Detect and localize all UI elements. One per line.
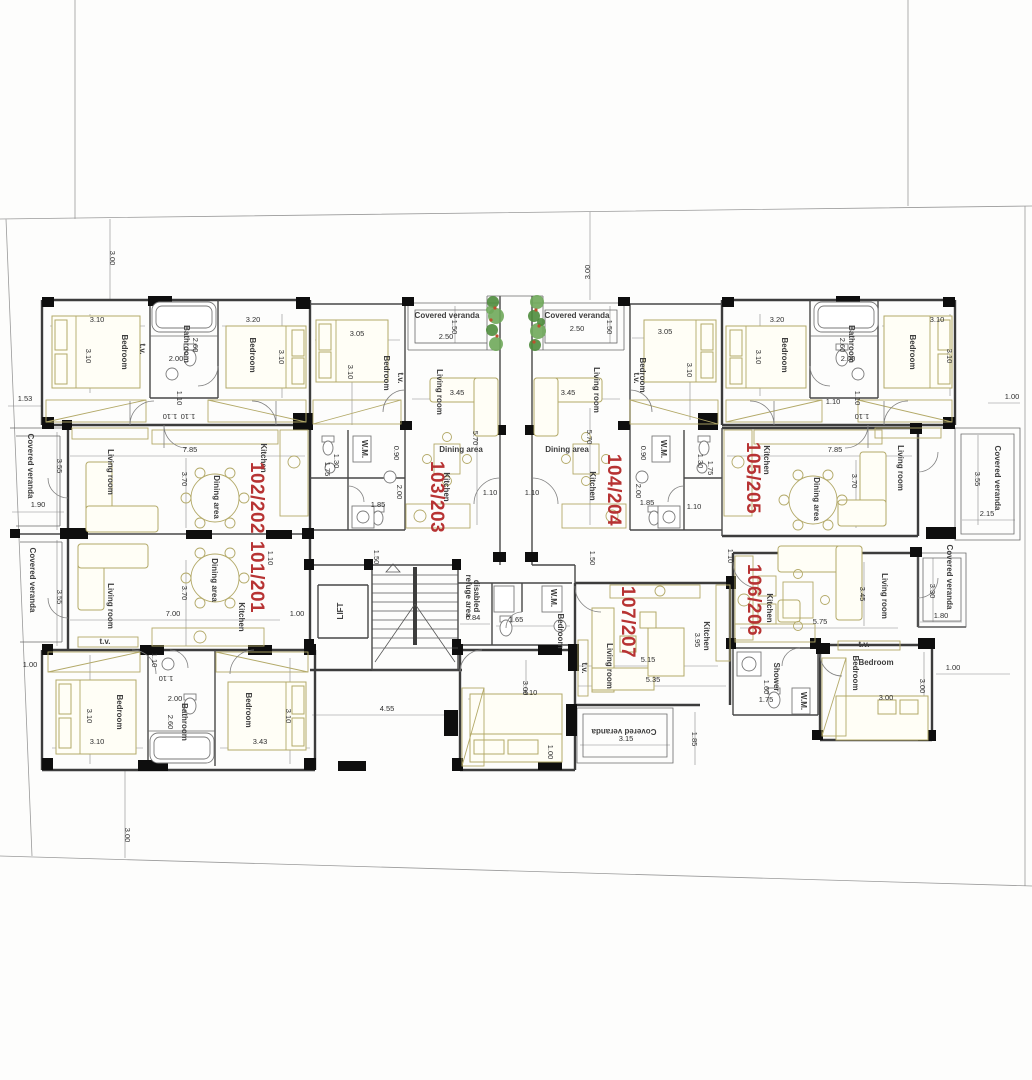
dimension-label: 2.15 <box>980 509 995 518</box>
toilet <box>322 436 334 455</box>
dimension-label: 2.60 <box>191 338 200 353</box>
dimension-label: 3.30 <box>928 584 937 599</box>
room-label: Covered veranda <box>945 545 954 610</box>
sink <box>852 368 864 380</box>
dimension-label: 1.50 <box>588 551 597 566</box>
dimension-label: 0.84 <box>466 613 481 622</box>
dimension-label: 3.10 <box>84 349 93 364</box>
dimension-label: 1.10 <box>826 397 841 406</box>
dimension-label: 3.95 <box>693 633 702 648</box>
room-label: Living room <box>106 449 115 495</box>
dimension-label: 1.10 <box>525 488 540 497</box>
dimension-label: 1.30 <box>696 454 705 469</box>
dimension-label: 3.45 <box>858 587 867 602</box>
tv-shelf <box>875 428 941 438</box>
room-label: Living room <box>880 573 889 619</box>
dimension-label: 0.90 <box>639 446 648 461</box>
room-label: Bedroom <box>908 334 917 369</box>
dimension-label: 3.15 <box>619 734 634 743</box>
room-label: Dining area <box>545 445 589 454</box>
dimension-label: 3.05 <box>350 329 365 338</box>
room-label: Kitchen <box>765 593 774 622</box>
dimension-label: 2.50 <box>439 332 454 341</box>
appliance <box>494 586 514 612</box>
unit-number-label: 105/205 <box>742 442 763 514</box>
dimension-label: 5.70 <box>585 430 594 445</box>
dimension-label: 3.10 <box>685 363 694 378</box>
room-label: t.v. <box>396 373 405 384</box>
room-label: t.v. <box>859 640 870 649</box>
dimension-label: 4.55 <box>380 704 395 713</box>
room-label: Bedroom <box>556 613 565 648</box>
floor-plan-drawing: BedroomBathroomBedroomBedroomBathroomBed… <box>0 0 1032 1080</box>
dimension-label: 1.10 <box>687 502 702 511</box>
dimension-label: 1.90 <box>31 500 46 509</box>
room-label: Covered veranda <box>545 311 610 320</box>
dimension-label: 1.10 <box>853 391 862 406</box>
dimension-label: 3.10 <box>523 688 538 697</box>
wardrobe <box>858 400 952 422</box>
shower-tray <box>737 652 761 676</box>
kitchen-counter <box>152 430 308 516</box>
dimension-label: 1.50 <box>372 550 381 565</box>
room-label: Bedroom <box>858 658 893 667</box>
room-label: Dining area <box>212 475 221 519</box>
room-label: Bedroom <box>780 337 789 372</box>
dimension-label: 3.10 <box>754 350 763 365</box>
shower-tray <box>352 506 374 528</box>
bathtub <box>814 302 878 332</box>
dimension-label: 1.10 <box>175 391 184 406</box>
sofa <box>534 378 602 436</box>
dimension-label: 3.10 <box>930 315 945 324</box>
dimension-label: 1.00 <box>290 609 305 618</box>
room-label: Bedroom <box>244 692 253 727</box>
dimension-label: 3.00 <box>879 693 894 702</box>
dimension-label: 3.10 <box>346 365 355 380</box>
dimension-label: 1.75 <box>706 461 715 476</box>
dimension-label: 1.10 <box>855 412 870 421</box>
dimension-label: 3.10 <box>85 709 94 724</box>
room-label: Dining area <box>812 477 821 521</box>
bed <box>884 316 952 388</box>
room-label: Bedroom <box>382 355 391 390</box>
unit-number-label: 101/201 <box>246 541 267 613</box>
dimension-label: 3.70 <box>180 586 189 601</box>
room-label: Kitchen <box>237 602 246 631</box>
wardrobe <box>208 400 306 422</box>
dimension-label: 1.80 <box>934 611 949 620</box>
dimension-label: 3.00 <box>583 265 592 280</box>
entrance-plants <box>486 295 546 351</box>
dimension-label: 0.90 <box>392 446 401 461</box>
room-label: Bathroom <box>182 325 191 363</box>
room-label: Kitchen <box>702 621 711 650</box>
unit-number-label: 106/206 <box>743 564 764 636</box>
dimension-label: 2.00 <box>841 354 856 363</box>
dimension-label: 1.60 <box>762 680 771 695</box>
unit-number-label: 104/204 <box>603 454 624 526</box>
dimension-label: 1.75 <box>759 695 774 704</box>
dimension-label: 1.10 <box>150 653 159 668</box>
dimension-label: 3.10 <box>90 737 105 746</box>
dimension-label: 1.75 <box>323 462 332 477</box>
dimension-label: 3.20 <box>246 315 261 324</box>
unit-number-label: 103/203 <box>426 461 447 533</box>
dimension-label: 3.55 <box>55 459 64 474</box>
dimension-label: 1.30 <box>332 454 341 469</box>
dimension-label: 3.55 <box>55 590 64 605</box>
room-label: Bathroom <box>180 703 189 741</box>
sofa <box>86 462 158 532</box>
room-label: W.M. <box>659 440 668 458</box>
room-label: Dining area <box>439 445 483 454</box>
room-label: Shower <box>772 663 781 692</box>
dimension-label: 3.45 <box>561 388 576 397</box>
dimension-label: 3.10 <box>284 709 293 724</box>
room-label: t.v. <box>138 344 147 355</box>
sink <box>636 471 648 483</box>
veranda-and-thin-lines <box>10 296 1020 763</box>
dimension-label: 1.85 <box>690 732 699 747</box>
dimension-label: 3.05 <box>658 327 673 336</box>
dimension-label: 3.70 <box>850 474 859 489</box>
dimension-label: 3.00 <box>108 251 117 266</box>
dimension-label: 3.70 <box>180 472 189 487</box>
dimension-label: 2.60 <box>838 338 847 353</box>
dimension-label: 2.00 <box>168 694 183 703</box>
dimension-label: 1.65 <box>509 615 524 624</box>
dimension-label: 3.00 <box>123 828 132 843</box>
tv-shelf <box>72 428 148 439</box>
room-label: Kitchen <box>588 471 597 500</box>
dimension-label: 1.00 <box>23 660 38 669</box>
room-label: Living room <box>605 643 614 689</box>
room-label: Living room <box>592 367 601 413</box>
unit-number-label: 107/207 <box>617 586 638 658</box>
room-label: Living room <box>896 445 905 491</box>
room-label: disabled <box>472 580 481 613</box>
dimension-label: 3.00 <box>918 679 927 694</box>
dimension-label: 2.50 <box>570 324 585 333</box>
dimension-label: 1.10 <box>726 549 735 564</box>
bed <box>226 326 306 388</box>
dimension-label: 2.60 <box>166 715 175 730</box>
sink <box>162 658 174 670</box>
room-label: W.M. <box>799 692 808 710</box>
dimension-label: 3.10 <box>277 350 286 365</box>
room-label: W.M. <box>360 440 369 458</box>
room-label: W.M. <box>549 589 558 607</box>
dimension-label: 3.43 <box>253 737 268 746</box>
room-label: Dining area <box>210 558 219 602</box>
dimension-label: 5.75 <box>813 617 828 626</box>
dimension-label: 5.70 <box>471 431 480 446</box>
dimension-label: 3.10 <box>90 315 105 324</box>
room-label: Covered veranda <box>993 446 1002 511</box>
dimension-label: 2.00 <box>395 485 404 500</box>
dimension-label: 7.85 <box>828 445 843 454</box>
floor-plan-canvas: BedroomBathroomBedroomBedroomBathroomBed… <box>0 0 1032 1080</box>
dimension-label: 1.00 <box>546 745 555 760</box>
dimension-label: 1.50 <box>605 320 614 335</box>
dimension-label: 1.85 <box>640 498 655 507</box>
wardrobe <box>48 652 140 672</box>
sofa <box>778 546 862 622</box>
room-label: Covered veranda <box>26 434 35 499</box>
dimension-label: 5.15 <box>641 655 656 664</box>
dimension-label: 3.55 <box>973 472 982 487</box>
room-label: Bedroom <box>120 334 129 369</box>
dimension-label: 5.35 <box>646 675 661 684</box>
dimension-label: 1.10 <box>181 412 196 421</box>
sink <box>166 368 178 380</box>
dimension-label: 1.10 <box>159 674 174 683</box>
room-label: refuge area <box>464 574 473 618</box>
dimension-label: 1.53 <box>18 394 33 403</box>
bed <box>644 320 716 382</box>
bed <box>836 696 928 740</box>
room-label: Covered veranda <box>415 311 480 320</box>
room-label: Living room <box>435 369 444 415</box>
dimension-label: 1.00 <box>1005 392 1020 401</box>
dimension-label: 3.10 <box>945 349 954 364</box>
staircase <box>372 564 458 662</box>
dimension-label: 1.00 <box>946 663 961 672</box>
dimension-label: 2.00 <box>169 354 184 363</box>
dimension-label: 7.00 <box>166 609 181 618</box>
wardrobe <box>630 400 718 424</box>
room-label: Bedroom <box>248 337 257 372</box>
room-label: t.v. <box>632 373 641 384</box>
bed <box>726 326 806 388</box>
sink <box>384 471 396 483</box>
room-label: Covered veranda <box>28 548 37 613</box>
toilet <box>698 436 710 455</box>
sofa <box>838 452 886 526</box>
dimension-label: 1.10 <box>163 412 178 421</box>
shower-tray <box>658 506 680 528</box>
wardrobe <box>313 400 401 424</box>
room-label: LIFT <box>336 602 345 619</box>
dimension-label: 1.85 <box>371 500 386 509</box>
dimension-label: 3.45 <box>450 388 465 397</box>
room-label: t.v. <box>100 637 111 646</box>
room-label: t.v. <box>580 663 589 674</box>
dimension-label: 7.85 <box>183 445 198 454</box>
room-label: Living room <box>106 583 115 629</box>
unit-number-label: 102/202 <box>246 462 267 534</box>
room-label: Bedroom <box>115 694 124 729</box>
dimension-label: 2.00 <box>634 484 643 499</box>
kitchen-counter <box>152 628 264 646</box>
dimension-label: 3.20 <box>770 315 785 324</box>
dimension-label: 1.10 <box>483 488 498 497</box>
